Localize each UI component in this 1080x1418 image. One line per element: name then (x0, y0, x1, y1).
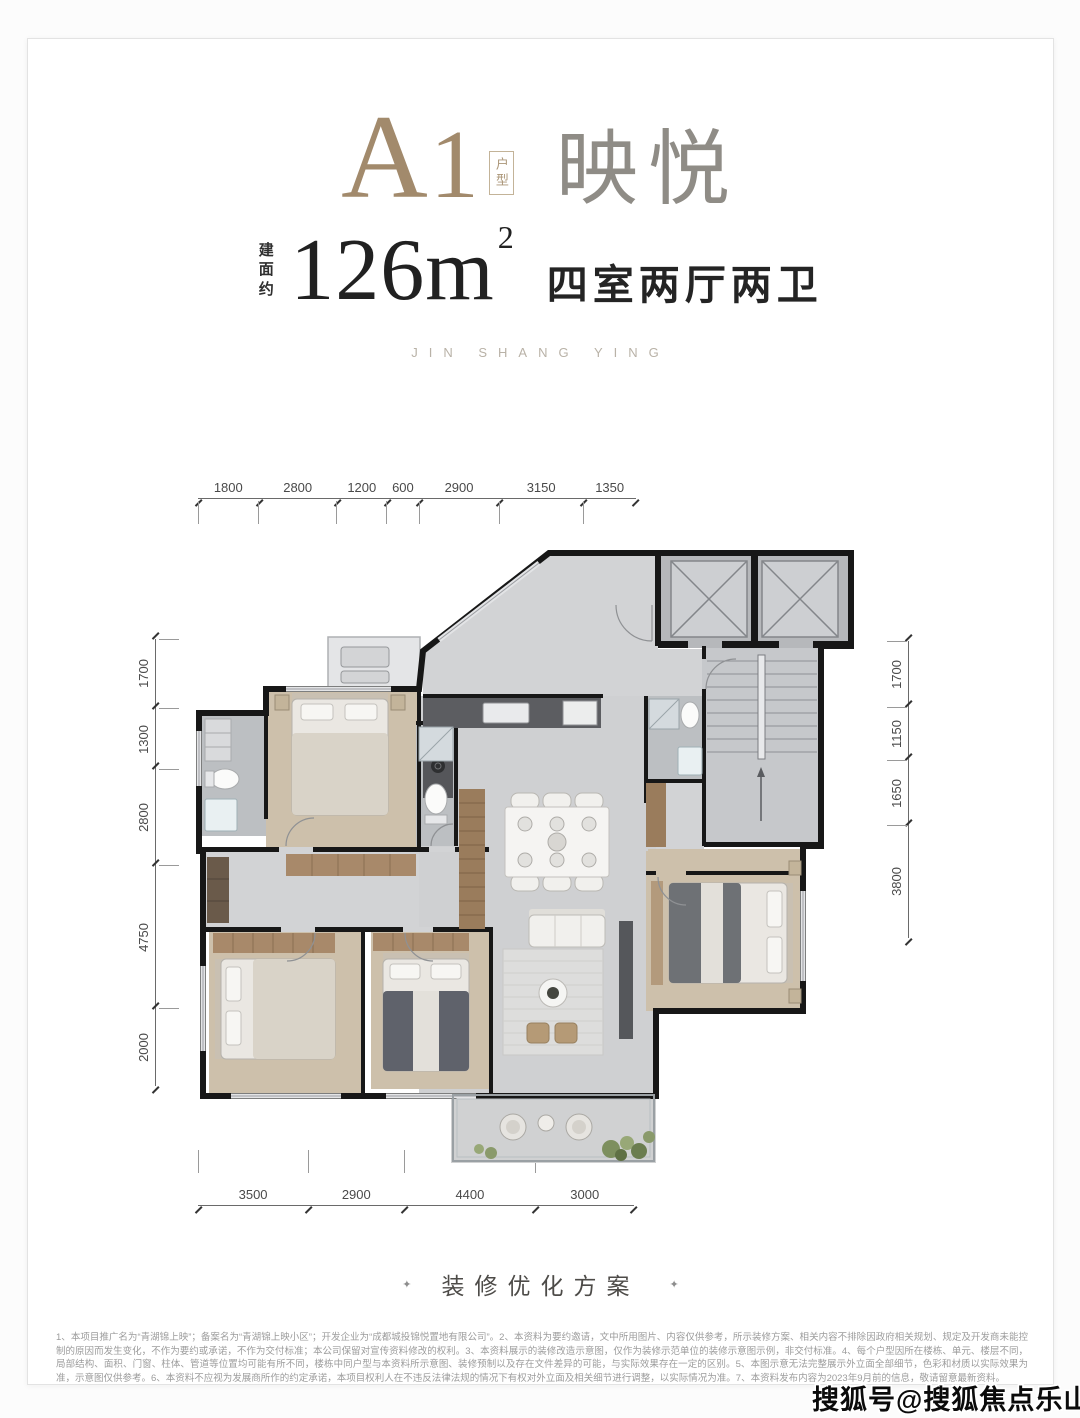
area-row: 建面约 126m 2 四室两厅两卫 (28, 227, 1053, 315)
dim-segment: 3000 (535, 1176, 634, 1205)
dimension-row-bottom: 3500 2900 4400 3000 (198, 1176, 634, 1206)
dim-segment: 600 (387, 469, 419, 498)
subtitle-latin: JIN SHANG YING (28, 345, 1053, 360)
dim-segment: 3150 (499, 469, 583, 498)
dim-segment: 4400 (404, 1176, 535, 1205)
dim-segment: 2000 (130, 1009, 155, 1086)
unit-type-code: A1 (341, 97, 481, 217)
equipment-platform (328, 637, 420, 689)
program-label: 装修优化方案 (442, 1267, 640, 1301)
area-prefix: 建面约 (258, 242, 274, 301)
program-row: ✦ 装修优化方案 ✦ (28, 1267, 1053, 1301)
room-layout-label: 四室两厅两卫 (547, 251, 823, 311)
floor-plan-block: 1800 2800 1200 600 2900 3150 1350 1700 1… (148, 464, 938, 1234)
title-row: A1 户型 映悦 (332, 97, 750, 217)
area-superscript: 2 (498, 219, 514, 256)
dim-segment: 2800 (130, 769, 155, 865)
header: A1 户型 映悦 建面约 126m 2 四室两厅两卫 JIN SHANG YIN… (28, 97, 1053, 360)
dim-segment: 1350 (583, 469, 636, 498)
diamond-bullet-icon: ✦ (402, 1278, 411, 1291)
poster-page: A1 户型 映悦 建面约 126m 2 四室两厅两卫 JIN SHANG YIN… (27, 38, 1054, 1385)
dining-table (505, 793, 609, 891)
dim-segment: 1300 (130, 709, 155, 769)
dimension-column-right: 1700 1150 1650 3800 (883, 641, 909, 938)
dim-segment: 3500 (198, 1176, 308, 1205)
type-number: 1 (430, 111, 481, 219)
type-box-label: 户型 (489, 151, 514, 195)
floor-plan-drawing (191, 541, 861, 1166)
dim-segment: 1200 (337, 469, 387, 498)
dimension-row-top: 1800 2800 1200 600 2900 3150 1350 (198, 469, 636, 499)
disclaimer-text: 1、本项目推广名为“青湖锦上映”；备案名为“青湖锦上映小区”；开发企业为“成都城… (56, 1331, 1028, 1385)
dim-segment: 2900 (308, 1176, 404, 1205)
dim-segment: 4750 (130, 866, 155, 1009)
dim-segment: 1700 (130, 639, 155, 709)
dim-segment: 1800 (198, 469, 259, 498)
plan-name: 映悦 (556, 129, 740, 211)
bed-bottom-left (213, 933, 335, 1059)
dim-segment: 2900 (419, 469, 499, 498)
dimension-column-left: 1700 1300 2800 4750 2000 (130, 639, 156, 1086)
watermark: 搜狐号@搜狐焦点乐山站 (812, 1378, 1080, 1417)
diamond-bullet-icon: ✦ (670, 1278, 679, 1291)
dim-segment: 1700 (883, 641, 908, 707)
bed-top-left (275, 693, 405, 815)
area-value: 126m (290, 227, 494, 315)
dim-segment: 1150 (883, 707, 908, 760)
dim-segment: 2800 (259, 469, 337, 498)
dim-segment: 3800 (883, 826, 908, 938)
bed-bottom-middle (373, 933, 469, 1071)
type-letter: A (341, 90, 430, 223)
dim-segment: 1650 (883, 760, 908, 825)
